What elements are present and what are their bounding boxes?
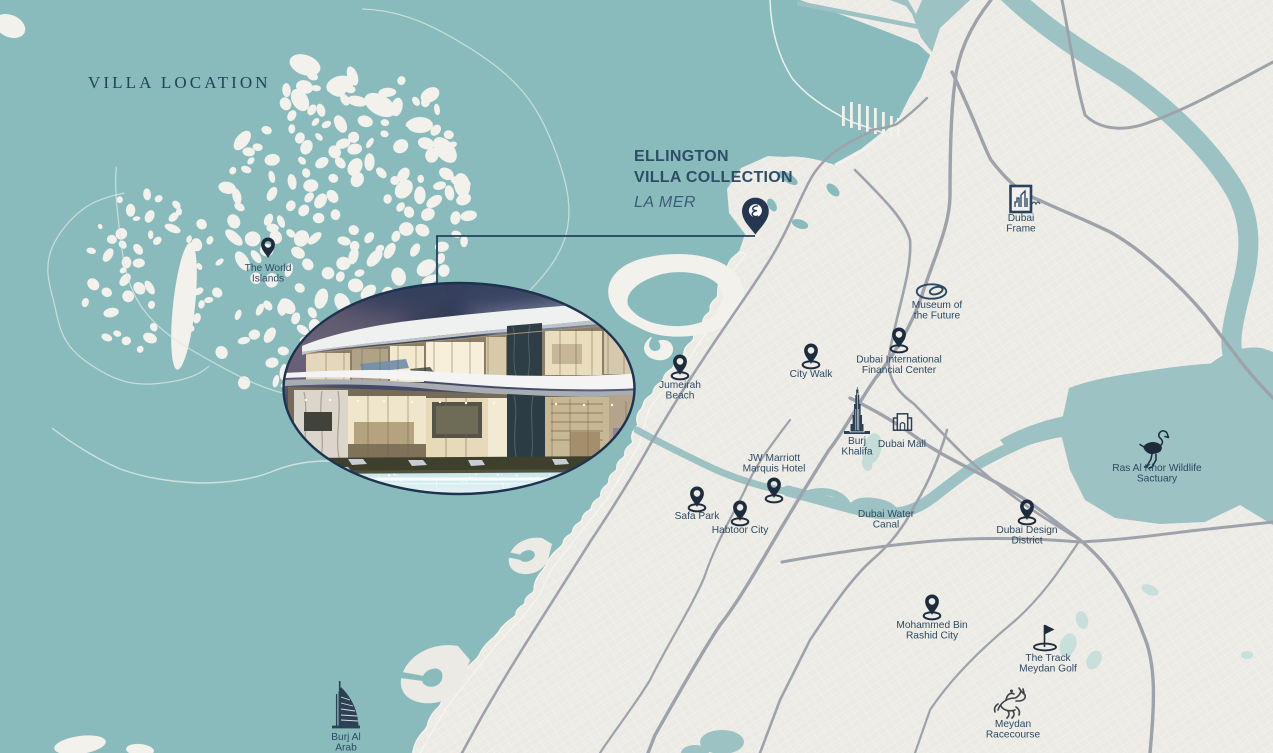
svg-text:Museum of: Museum of bbox=[912, 300, 963, 311]
svg-text:Beach: Beach bbox=[666, 390, 695, 401]
svg-text:Dubai Design: Dubai Design bbox=[996, 525, 1057, 536]
svg-text:Racecourse: Racecourse bbox=[986, 729, 1041, 740]
svg-text:ELLINGTON: ELLINGTON bbox=[634, 148, 729, 165]
svg-text:District: District bbox=[1011, 535, 1042, 546]
svg-text:The Track: The Track bbox=[1025, 653, 1071, 664]
svg-text:City Walk: City Walk bbox=[790, 369, 834, 380]
svg-text:LA MER: LA MER bbox=[634, 194, 696, 211]
svg-text:Mohammed Bin: Mohammed Bin bbox=[896, 620, 967, 631]
svg-text:Burj: Burj bbox=[848, 436, 866, 447]
svg-text:Dubai: Dubai bbox=[1008, 213, 1035, 224]
svg-text:Jumeirah: Jumeirah bbox=[659, 380, 701, 391]
svg-text:JW Marriott: JW Marriott bbox=[748, 453, 800, 464]
svg-text:VILLA COLLECTION: VILLA COLLECTION bbox=[634, 169, 793, 186]
svg-text:Meydan Golf: Meydan Golf bbox=[1019, 663, 1077, 674]
svg-text:Safa Park: Safa Park bbox=[675, 511, 721, 522]
svg-text:Habtoor City: Habtoor City bbox=[712, 525, 770, 536]
svg-text:Meydan: Meydan bbox=[995, 719, 1031, 730]
svg-text:Khalifa: Khalifa bbox=[841, 446, 872, 457]
svg-text:Dubai International: Dubai International bbox=[856, 355, 942, 366]
svg-text:The World: The World bbox=[245, 263, 292, 274]
svg-text:Sactuary: Sactuary bbox=[1137, 473, 1178, 484]
svg-text:Islands: Islands bbox=[252, 273, 284, 284]
svg-text:Financial Center: Financial Center bbox=[862, 365, 937, 376]
svg-text:Canal: Canal bbox=[873, 519, 900, 530]
svg-text:Marquis Hotel: Marquis Hotel bbox=[743, 463, 806, 474]
svg-text:Dubai Mall: Dubai Mall bbox=[878, 439, 926, 450]
svg-text:Arab: Arab bbox=[335, 742, 357, 753]
svg-text:Burj Al: Burj Al bbox=[331, 732, 360, 743]
svg-text:the Future: the Future bbox=[914, 310, 961, 321]
svg-text:VILLA LOCATION: VILLA LOCATION bbox=[88, 73, 271, 92]
svg-text:Frame: Frame bbox=[1006, 223, 1036, 234]
svg-text:Dubai Water: Dubai Water bbox=[858, 509, 915, 520]
svg-text:Ras Al Khor Wildlife: Ras Al Khor Wildlife bbox=[1112, 463, 1202, 474]
svg-text:Rashid City: Rashid City bbox=[906, 630, 959, 641]
